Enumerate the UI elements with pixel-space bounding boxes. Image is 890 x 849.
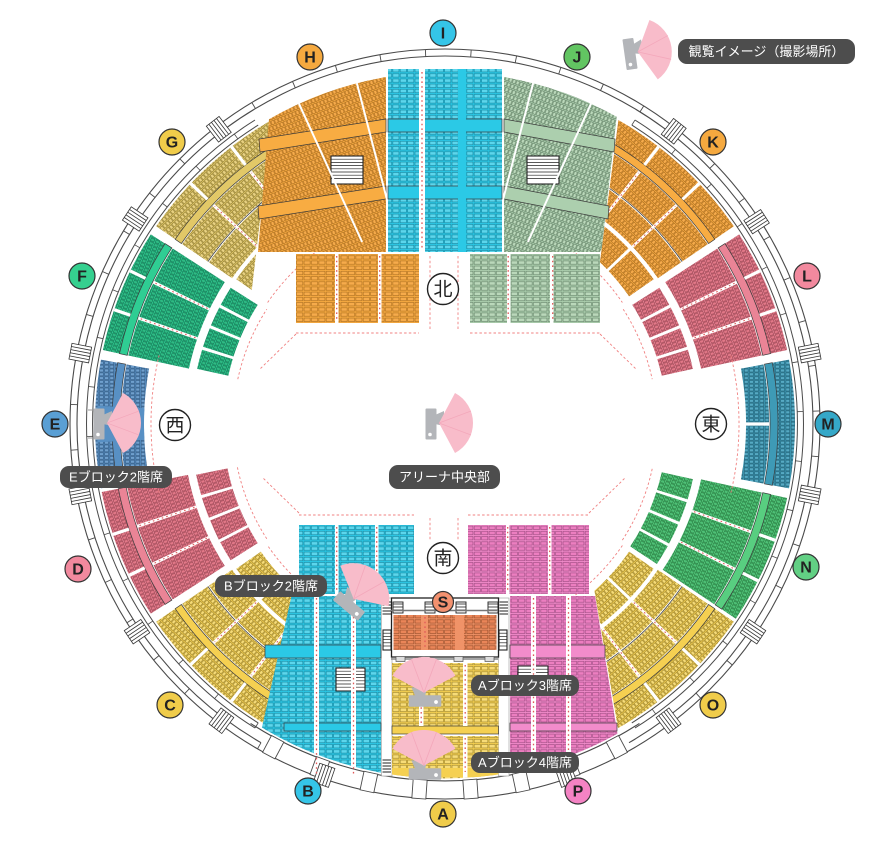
svg-text:L: L [802,269,812,286]
svg-text:O: O [707,698,719,715]
svg-text:A: A [437,807,449,824]
svg-text:N: N [800,560,812,577]
svg-text:G: G [166,135,178,152]
svg-text:D: D [72,562,84,579]
svg-text:B: B [302,784,314,801]
svg-text:東: 東 [701,414,720,436]
svg-text:P: P [573,784,584,801]
svg-text:北: 北 [433,279,452,301]
svg-text:Aブロック3階席: Aブロック3階席 [478,678,572,693]
svg-text:南: 南 [433,548,452,570]
svg-text:I: I [441,26,445,43]
svg-text:E: E [50,417,61,434]
svg-text:C: C [164,698,176,715]
svg-text:H: H [304,50,316,67]
svg-text:Eブロック2階席: Eブロック2階席 [69,470,163,485]
svg-text:J: J [573,50,582,67]
svg-text:アリーナ中央部: アリーナ中央部 [399,470,490,485]
svg-text:F: F [77,269,87,286]
svg-text:西: 西 [165,416,184,437]
svg-text:S: S [438,595,449,612]
svg-text:Aブロック4階席: Aブロック4階席 [478,755,572,770]
svg-text:K: K [707,135,719,152]
svg-text:観覧イメージ（撮影場所）: 観覧イメージ（撮影場所） [689,44,845,59]
svg-text:Bブロック2階席: Bブロック2階席 [224,579,318,594]
svg-text:M: M [821,417,834,434]
